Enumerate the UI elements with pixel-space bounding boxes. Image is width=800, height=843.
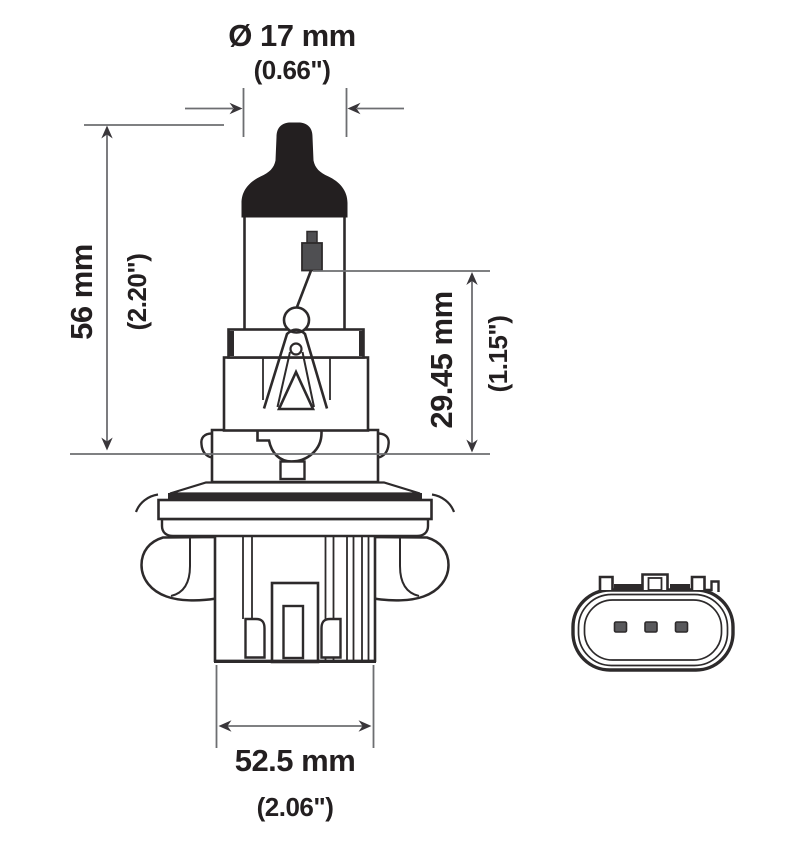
connector-pin bbox=[676, 622, 688, 632]
left-wing bbox=[142, 537, 217, 600]
left-wing-hook bbox=[136, 495, 158, 513]
dim-length-imperial-label: (2.20") bbox=[122, 254, 152, 331]
top-bar-segment bbox=[614, 584, 642, 591]
filament-coil bbox=[302, 243, 322, 271]
dim-diameter-imperial-label: (0.66") bbox=[254, 55, 331, 85]
glass-envelope bbox=[242, 123, 348, 331]
connector-tab-right bbox=[692, 577, 705, 590]
plate-transition bbox=[170, 483, 420, 494]
gasket-stripe bbox=[168, 493, 422, 501]
flange-key-tab bbox=[281, 462, 305, 480]
mounting-plate bbox=[159, 500, 432, 519]
connector-drawing bbox=[573, 575, 733, 671]
frame-pivot-rivet bbox=[291, 344, 302, 355]
base-body bbox=[214, 536, 376, 662]
plate-lower-band bbox=[162, 519, 428, 536]
dim-diameter-metric-label: Ø 17 mm bbox=[228, 18, 355, 53]
dim-filament-imperial-label: (1.15") bbox=[483, 316, 513, 393]
connector-tab-step bbox=[705, 582, 719, 593]
dim-base-annotation: 52.5 mm (2.06") bbox=[217, 665, 374, 822]
cavity-left-tab bbox=[246, 619, 265, 658]
flange-plate-stack bbox=[159, 483, 432, 537]
filament-assembly bbox=[297, 232, 322, 308]
connector-pins bbox=[615, 622, 688, 632]
top-bar-segment bbox=[670, 584, 690, 591]
filament-lead-wire bbox=[297, 271, 311, 308]
dim-base-metric-label: 52.5 mm bbox=[235, 743, 356, 778]
seating-flange bbox=[201, 430, 388, 482]
connector-pin bbox=[645, 622, 657, 632]
bulb-drawing bbox=[136, 123, 454, 663]
cavity-center-slot bbox=[284, 606, 304, 658]
center-tab-notch bbox=[649, 578, 662, 590]
filament-stub bbox=[307, 232, 317, 244]
dim-diameter-annotation: Ø 17 mm (0.66") bbox=[185, 18, 404, 137]
black-painted-tip bbox=[242, 123, 348, 218]
right-wing-hook bbox=[432, 495, 454, 513]
dim-length-metric-label: 56 mm bbox=[64, 244, 99, 340]
connector-tab-left bbox=[600, 577, 613, 590]
connector-top-tabs bbox=[600, 575, 719, 593]
connector-pin bbox=[615, 622, 627, 632]
dim-filament-metric-label: 29.45 mm bbox=[424, 291, 459, 428]
cavity-right-tab bbox=[322, 619, 341, 658]
bulb-dimension-diagram: Ø 17 mm (0.66") 56 mm (2.20") 29.45 mm (… bbox=[0, 0, 800, 843]
diagram-canvas: Ø 17 mm (0.66") 56 mm (2.20") 29.45 mm (… bbox=[0, 0, 800, 843]
dim-base-imperial-label: (2.06") bbox=[257, 792, 334, 822]
right-wing bbox=[374, 537, 449, 600]
